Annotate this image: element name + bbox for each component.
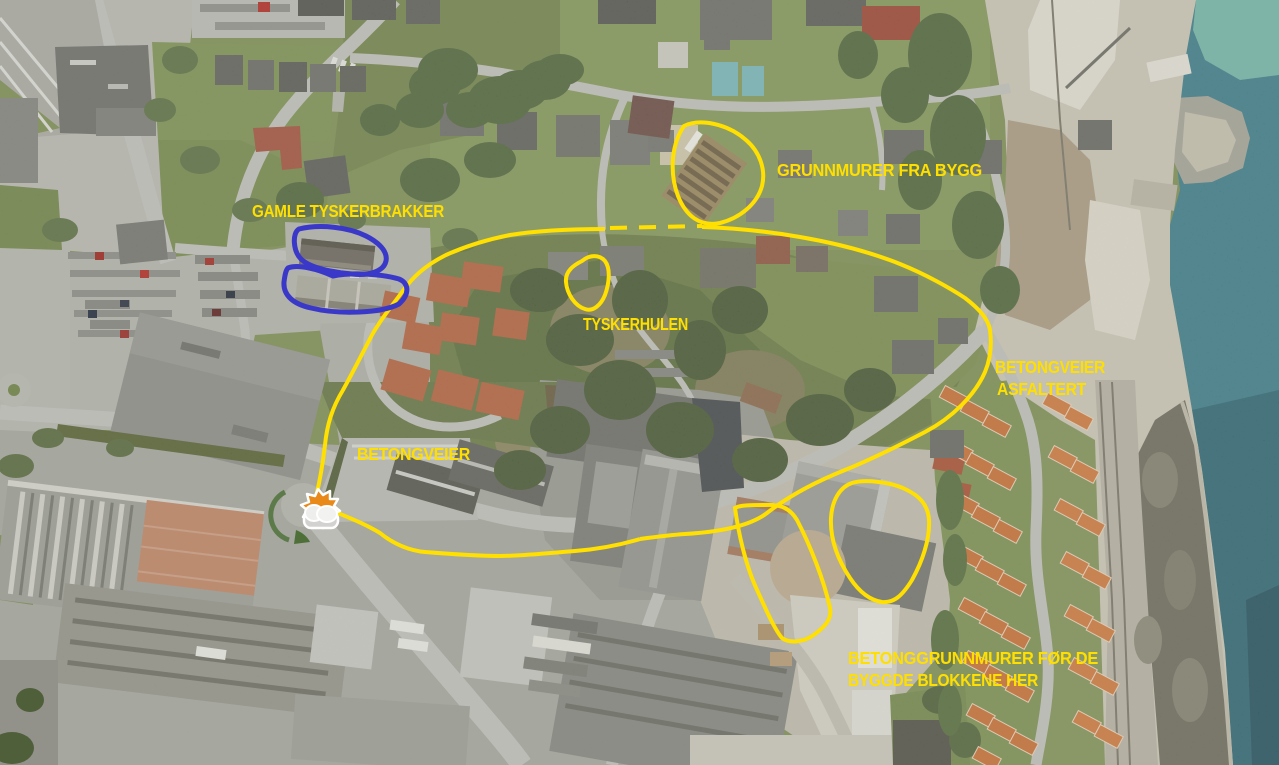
svg-text:BETONGVEIER: BETONGVEIER (357, 444, 471, 464)
svg-text:TYSKERHULEN: TYSKERHULEN (583, 314, 688, 334)
svg-text:GRUNNMURER FRA BYGG: GRUNNMURER FRA BYGG (777, 160, 982, 180)
svg-text:BETONGVEIER: BETONGVEIER (995, 357, 1106, 377)
svg-text:BETONGGRUNNMURER FØR DE: BETONGGRUNNMURER FØR DE (848, 648, 1098, 668)
svg-text:GAMLE TYSKERBRAKKER: GAMLE TYSKERBRAKKER (252, 201, 445, 221)
svg-text:ASFALTERT: ASFALTERT (997, 379, 1087, 399)
svg-text:BYGGDE BLOKKENE HER: BYGGDE BLOKKENE HER (848, 670, 1039, 690)
